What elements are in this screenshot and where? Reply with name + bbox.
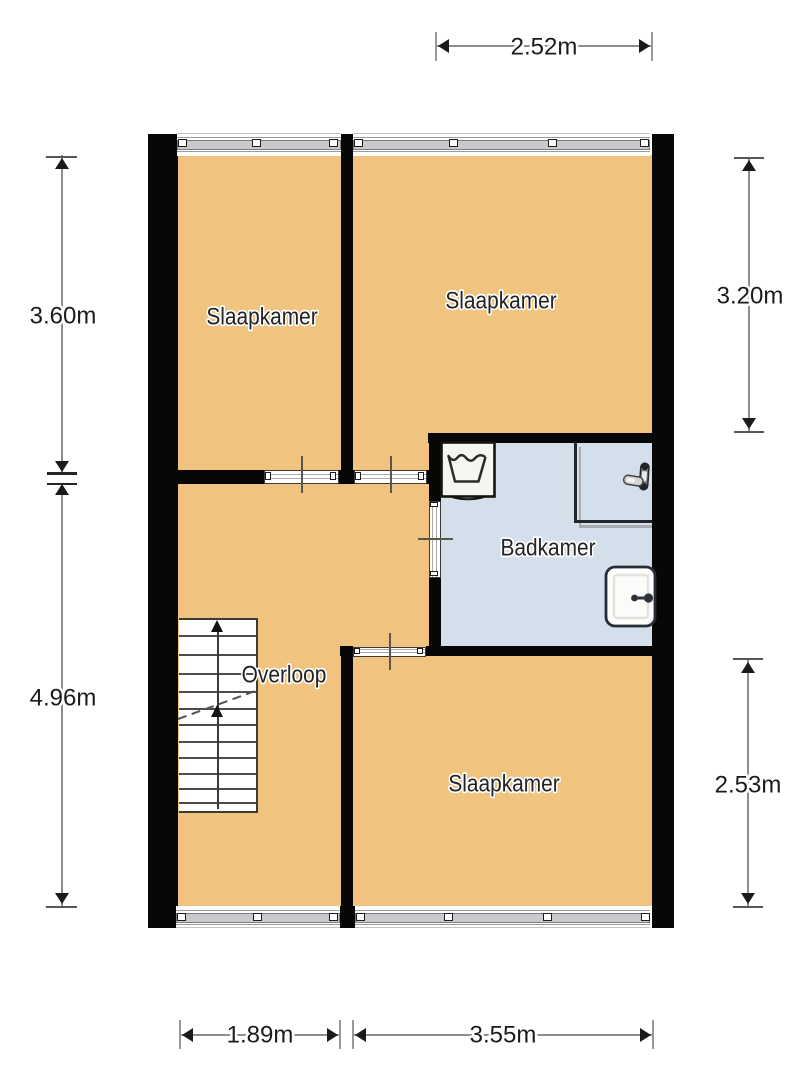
svg-text:2.52m: 2.52m bbox=[511, 34, 578, 61]
svg-text:Slaapkamer: Slaapkamer bbox=[448, 770, 560, 797]
svg-text:3.55m: 3.55m bbox=[470, 1022, 537, 1049]
svg-text:3.20m: 3.20m bbox=[717, 283, 784, 310]
svg-text:Slaapkamer: Slaapkamer bbox=[206, 303, 318, 330]
svg-text:4.96m: 4.96m bbox=[30, 685, 97, 712]
svg-text:Badkamer: Badkamer bbox=[500, 534, 596, 561]
svg-text:Overloop: Overloop bbox=[242, 661, 327, 688]
svg-text:3.60m: 3.60m bbox=[30, 303, 97, 330]
svg-text:Slaapkamer: Slaapkamer bbox=[445, 287, 557, 314]
svg-text:1.89m: 1.89m bbox=[227, 1022, 294, 1049]
svg-text:2.53m: 2.53m bbox=[715, 772, 782, 799]
